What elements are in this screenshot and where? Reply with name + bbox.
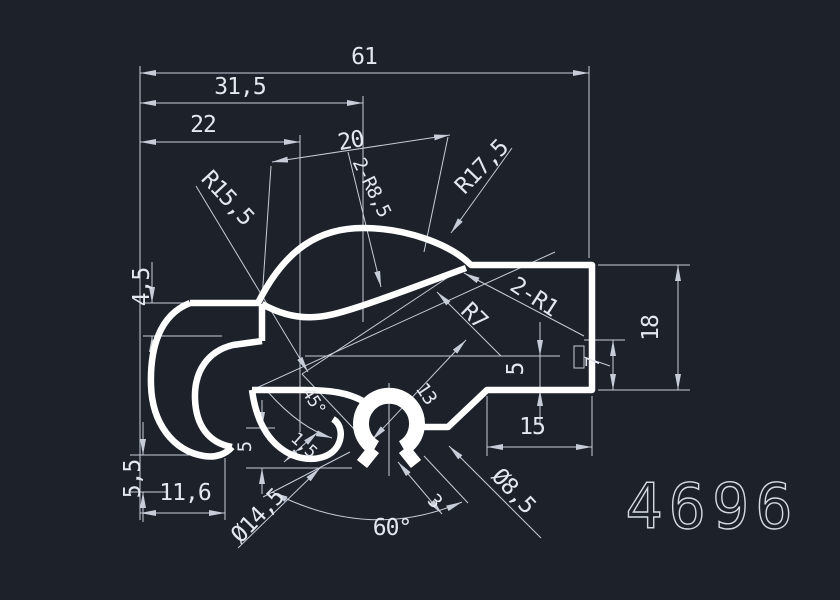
dim-aligned-width: 20 (336, 126, 366, 156)
dim-left-top-height: 4,5 (129, 268, 155, 307)
dim-upper-width: 31,5 (214, 74, 265, 100)
drawing-number: 4696 (625, 470, 798, 543)
dim-opening-angle: 60° (373, 515, 412, 541)
dim-right-height: 18 (638, 315, 664, 341)
dim-fillet-pair: 2-R1 (505, 272, 562, 322)
dim-bottom-width: 11,6 (159, 480, 211, 506)
cad-viewport[interactable]: 61 31,5 22 20 2-R8,5 R17,5 R15,5 4,5 2-R… (0, 0, 840, 600)
dim-outer-diameter: Ø14,5 (226, 484, 289, 548)
dim-total-width: 61 (351, 44, 377, 70)
dim-left-width: 22 (190, 112, 216, 138)
dim-left-radius: R15,5 (196, 166, 259, 231)
dim-left-bottom-height: 5,5 (120, 460, 146, 499)
dim-tongue-length: 15 (519, 414, 545, 440)
cad-application-canvas[interactable]: 61 31,5 22 20 2-R8,5 R17,5 R15,5 4,5 2-R… (0, 0, 840, 600)
dim-groove-depth: 5 (503, 363, 529, 376)
dim-arc-radius-pair: 2-R8,5 (348, 154, 395, 220)
construction-lines (252, 252, 555, 448)
dim-lip-height: 5 (234, 442, 256, 452)
dim-inner-radius: R7 (456, 298, 493, 335)
dim-step-height: 7 (582, 356, 604, 367)
